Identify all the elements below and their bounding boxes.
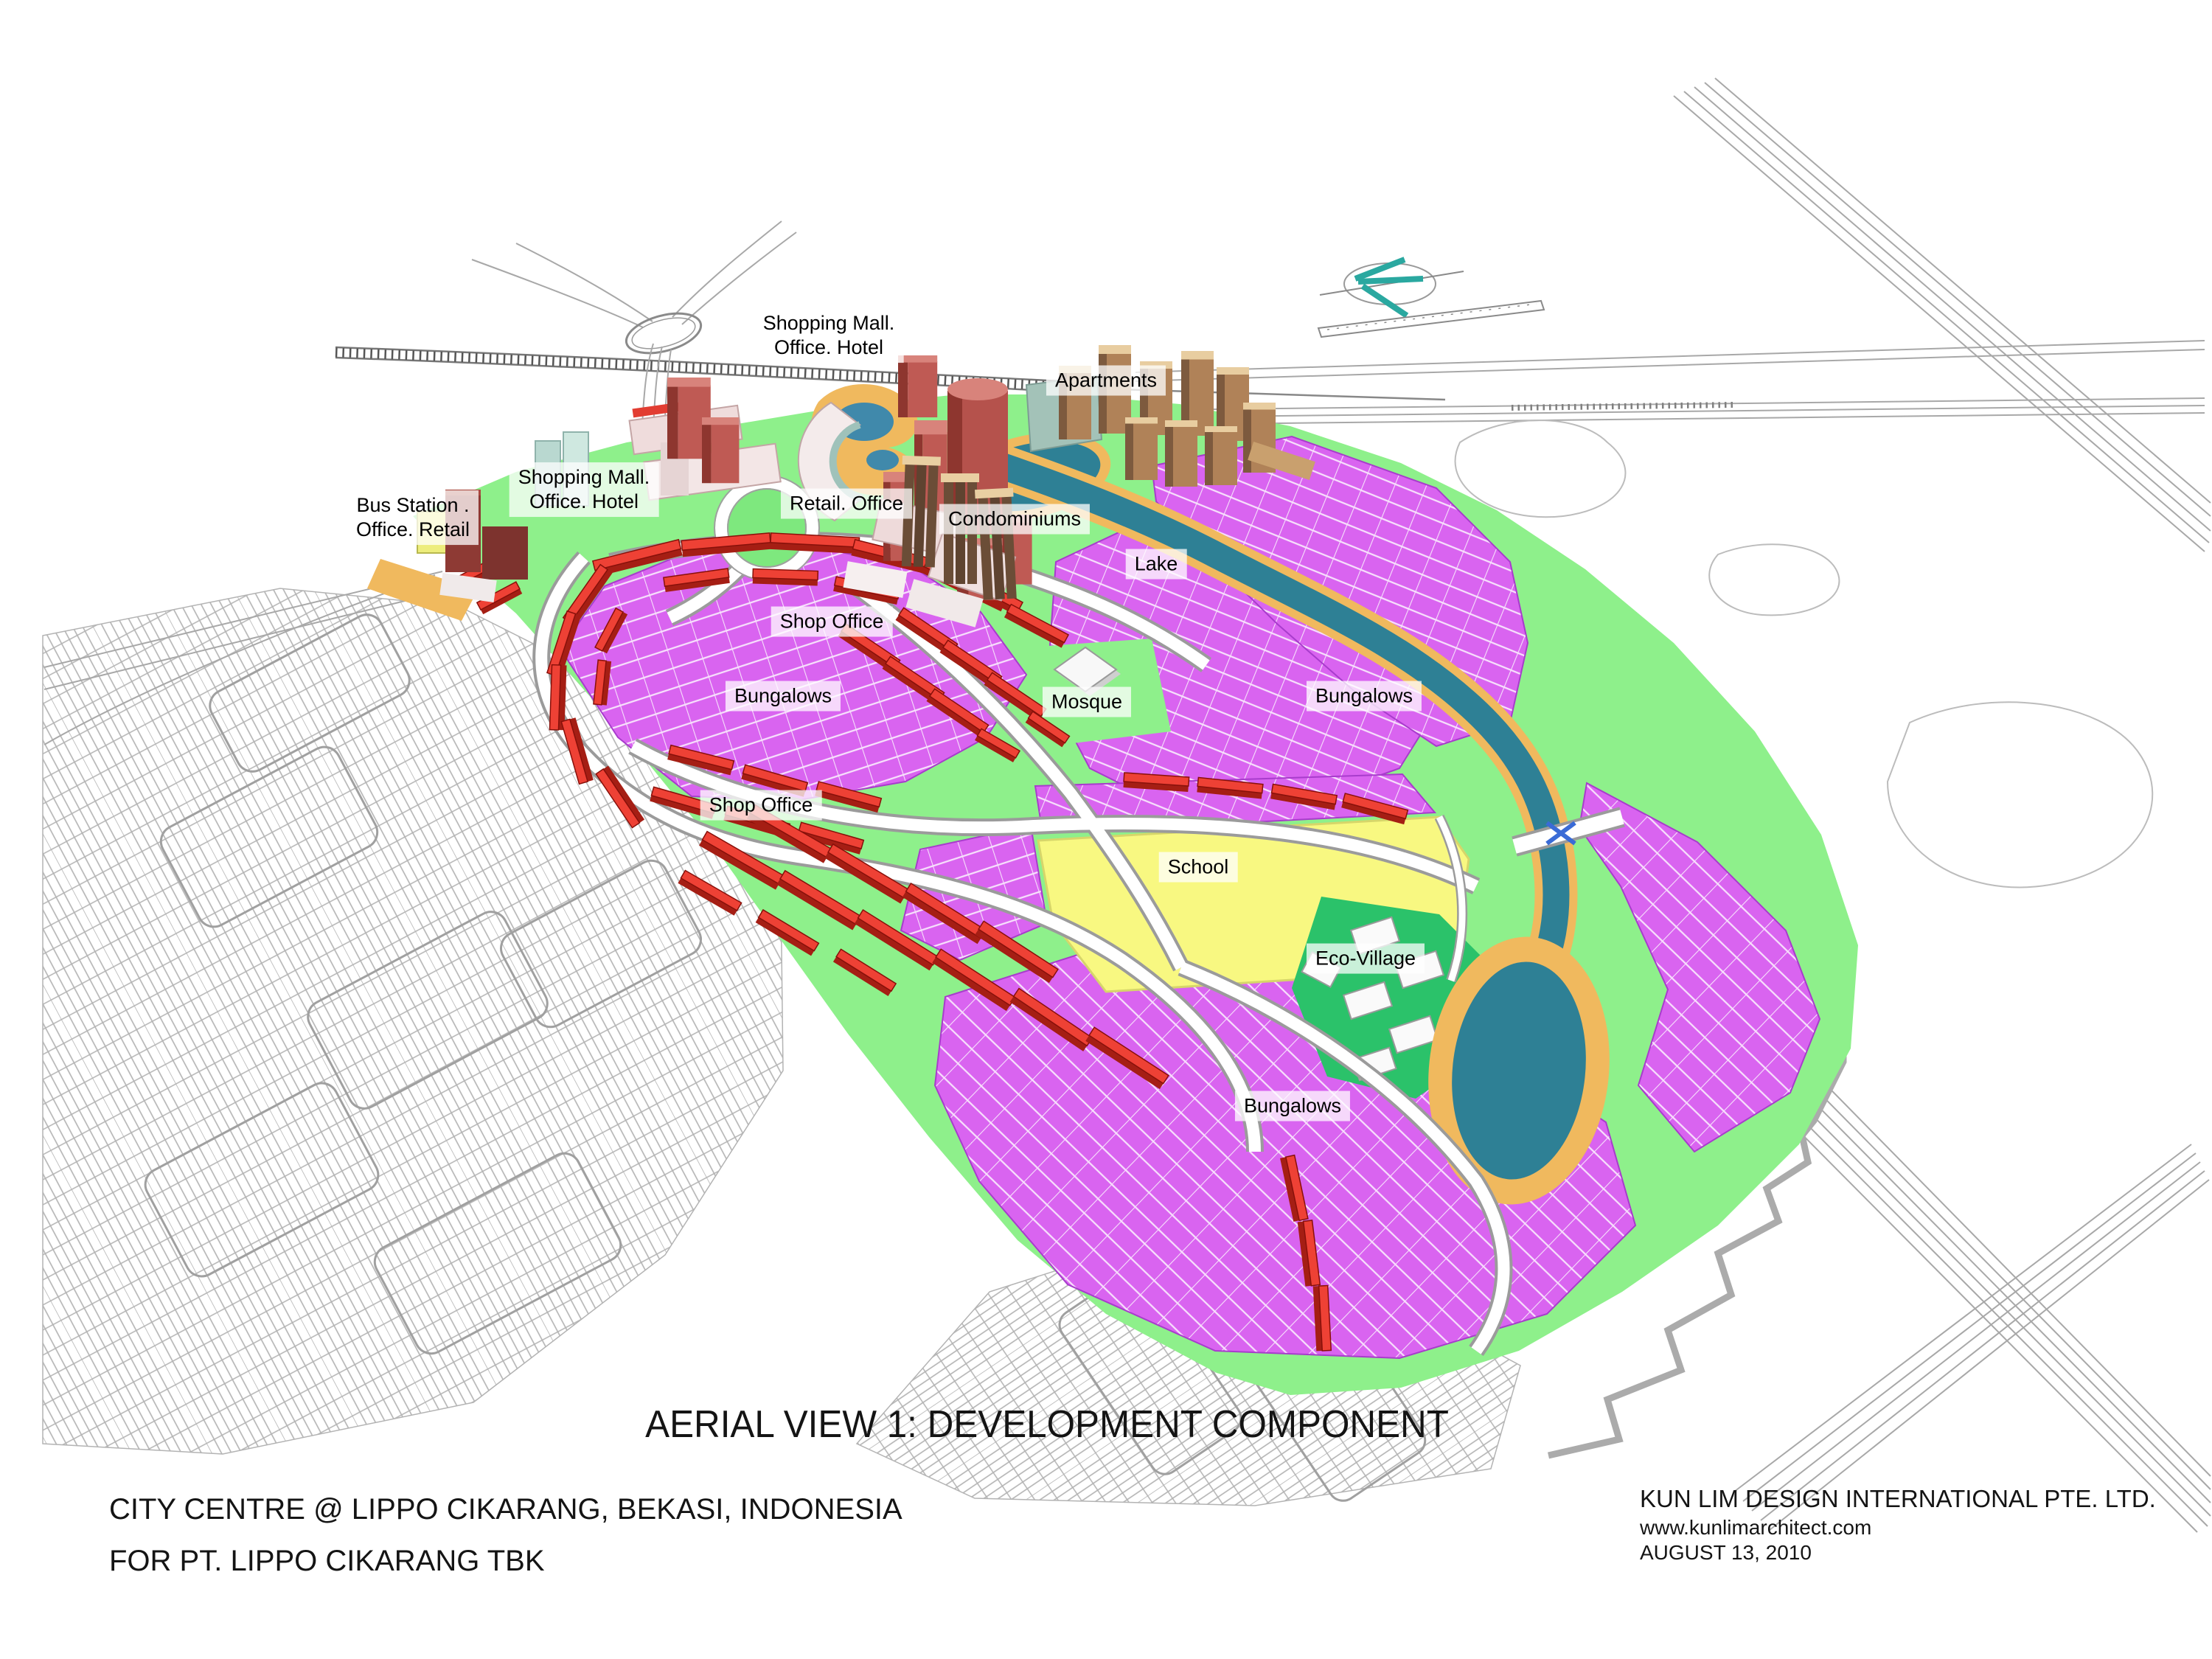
label-bus-station: Bus Station . Office. Retail [347,490,479,545]
project-client: FOR PT. LIPPO CIKARANG TBK [109,1535,902,1587]
project-name: CITY CENTRE @ LIPPO CIKARANG, BEKASI, IN… [109,1484,902,1535]
drawing-date: AUGUST 13, 2010 [1640,1541,1812,1565]
label-shopping-mall-west: Shopping Mall. Office. Hotel [509,462,659,517]
label-line: Office. Hotel [763,335,895,360]
label-line: Office. Retail [356,518,470,542]
bridge-deck-sketch [1318,301,1544,337]
label-shop-office-north: Shop Office [771,607,893,637]
drawing-title: AERIAL VIEW 1: DEVELOPMENT COMPONENT [645,1402,1449,1447]
aerial-view-rendering: Shopping Mall. Office. Hotel Apartments … [0,0,2212,1659]
label-line: Shopping Mall. [763,311,895,335]
label-school: School [1159,852,1238,883]
label-lake: Lake [1126,549,1187,580]
label-eco-village: Eco-Village [1307,944,1425,974]
label-condominiums: Condominiums [939,504,1090,535]
label-retail-office: Retail. Office [781,489,912,519]
project-credit: CITY CENTRE @ LIPPO CIKARANG, BEKASI, IN… [109,1484,902,1587]
label-line: Office. Hotel [518,490,650,514]
gateway-sketch-icon [1320,260,1464,316]
label-line: Shopping Mall. [518,465,650,490]
firm-website: www.kunlimarchitect.com [1640,1516,1871,1540]
label-shop-office-south: Shop Office [700,790,822,821]
label-apartments: Apartments [1046,366,1166,396]
label-mosque: Mosque [1043,687,1131,717]
label-bungalows-west: Bungalows [726,681,841,712]
label-shopping-mall-north: Shopping Mall. Office. Hotel [754,308,904,363]
label-bungalows-south: Bungalows [1235,1091,1350,1121]
label-line: Bus Station . [356,493,470,518]
firm-name: KUN LIM DESIGN INTERNATIONAL PTE. LTD. [1640,1485,2156,1513]
label-bungalows-east: Bungalows [1307,681,1422,712]
